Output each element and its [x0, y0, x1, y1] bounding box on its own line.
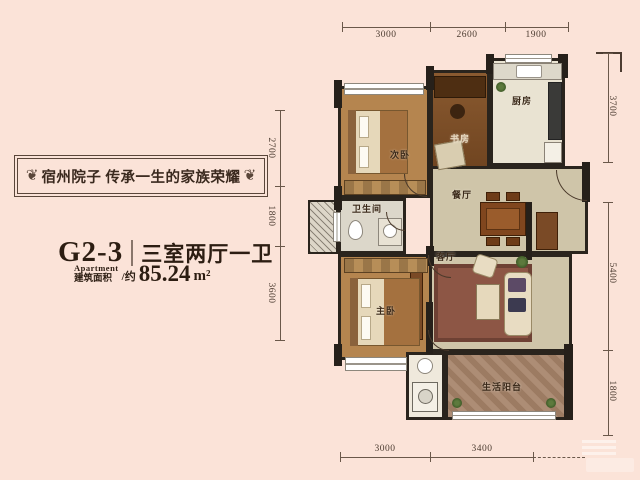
master-pillow — [361, 316, 371, 340]
area-labels: Apartment 建筑面积 — [74, 264, 119, 285]
bedroom2-pillow — [359, 116, 369, 138]
kitchen-plant-icon — [496, 82, 506, 92]
dim-bottom-1: 3000 — [355, 444, 415, 454]
washing-machine-drum — [418, 389, 433, 404]
kitchen-window — [505, 54, 552, 63]
floorplan-page: { "page": { "background": "#fbe3d8" }, "… — [0, 0, 640, 480]
dim-bottom-2: 3400 — [452, 444, 512, 454]
area-label: 建筑面积 — [74, 274, 119, 285]
dim-tick — [603, 162, 613, 163]
dim-right-3: 1800 — [607, 371, 617, 411]
toilet — [348, 220, 363, 240]
wall-segment — [334, 344, 342, 366]
bedroom2-blanket — [380, 111, 407, 173]
corner-mark — [620, 52, 622, 72]
wall-segment — [526, 202, 532, 260]
sofa-cushion — [508, 278, 526, 292]
dim-tick — [430, 452, 431, 462]
dim-top-3: 1900 — [506, 30, 566, 40]
dim-tick — [603, 435, 613, 436]
room-label-living: 客厅 — [436, 250, 456, 263]
dim-line-bottom — [340, 457, 533, 458]
wall-segment — [334, 186, 342, 210]
brand-slogan: 宿州院子 传承一生的家族荣耀 — [41, 166, 240, 187]
wall-segment — [334, 80, 342, 108]
dim-tick — [568, 22, 569, 32]
entry-cabinet — [536, 212, 558, 250]
kitchen-fridge — [544, 142, 562, 163]
laundry-sink — [417, 358, 433, 374]
approx-label: /约 — [122, 268, 136, 285]
dim-top-2: 2600 — [437, 30, 497, 40]
apartment-label: Apartment — [74, 264, 119, 274]
dining-chair — [486, 237, 500, 246]
area-unit: m² — [193, 269, 210, 285]
dim-right-1: 3700 — [607, 86, 617, 126]
watermark — [582, 438, 638, 476]
sofa-cushion — [508, 298, 526, 312]
master-headboard — [350, 278, 358, 346]
living-plant-icon — [516, 256, 528, 268]
coffee-table — [476, 284, 500, 320]
unit-area-row: Apartment 建筑面积 /约 85.24 m² — [74, 264, 210, 285]
dim-left-1: 2700 — [266, 128, 276, 168]
study-chair — [450, 104, 465, 119]
kitchen-sink — [516, 65, 542, 78]
dim-line-bottom-dashed — [533, 457, 585, 458]
slogan-plaque: ❦ 宿州院子 传承一生的家族荣耀 ❦ — [14, 155, 268, 197]
dim-left-3: 3600 — [266, 273, 276, 313]
dim-line-left — [280, 110, 281, 340]
area-value: 85.24 — [139, 264, 191, 285]
unit-divider — [131, 240, 133, 266]
wall-segment — [426, 302, 433, 354]
bedroom2-bay-window — [344, 83, 424, 95]
dim-tick — [533, 452, 534, 462]
wall-segment — [426, 66, 434, 90]
flourish-right-icon: ❦ — [244, 169, 257, 184]
study-desk — [434, 76, 486, 98]
bathroom-side-window — [333, 212, 341, 242]
room-label-dining: 餐厅 — [452, 188, 472, 201]
dim-tick — [603, 350, 613, 351]
dim-left-2: 1800 — [266, 196, 276, 236]
bedroom2-headboard — [348, 110, 356, 174]
bedroom2-pillow — [359, 146, 369, 168]
wall-segment — [564, 344, 573, 420]
balcony-plant-icon — [452, 398, 462, 408]
balcony-plant-icon — [546, 398, 556, 408]
master-bay-window — [345, 357, 407, 371]
room-label-bedroom2: 次卧 — [390, 148, 410, 161]
dining-chair — [506, 237, 520, 246]
dim-tick — [342, 22, 343, 32]
floorplan: 厨房 书房 次卧 卫生间 餐厅 客厅 主卧 生活阳台 — [300, 50, 600, 430]
room-label-kitchen: 厨房 — [512, 94, 532, 107]
dim-tick — [275, 246, 285, 247]
dim-tick — [275, 340, 285, 341]
dim-right-2: 5400 — [607, 253, 617, 293]
dim-tick — [275, 186, 285, 187]
dining-table-top — [486, 208, 520, 230]
master-wardrobe — [344, 258, 428, 273]
balcony-window — [452, 411, 556, 420]
dining-chair — [506, 192, 520, 201]
dim-tick — [603, 53, 613, 54]
dim-line-top — [342, 27, 568, 28]
slogan-plaque-inner: ❦ 宿州院子 传承一生的家族荣耀 ❦ — [17, 158, 265, 194]
dim-tick — [340, 452, 341, 462]
room-label-study: 书房 — [450, 132, 470, 145]
dim-tick — [430, 22, 431, 32]
dim-tick — [275, 110, 285, 111]
kitchen-appliance-column — [548, 82, 562, 140]
room-label-master: 主卧 — [376, 304, 396, 317]
master-pillow — [361, 284, 371, 308]
dim-top-1: 3000 — [356, 30, 416, 40]
flourish-left-icon: ❦ — [26, 169, 39, 184]
dim-tick — [603, 202, 613, 203]
room-label-balcony: 生活阳台 — [482, 380, 522, 393]
dining-chair — [486, 192, 500, 201]
room-label-bathroom: 卫生间 — [352, 202, 382, 215]
